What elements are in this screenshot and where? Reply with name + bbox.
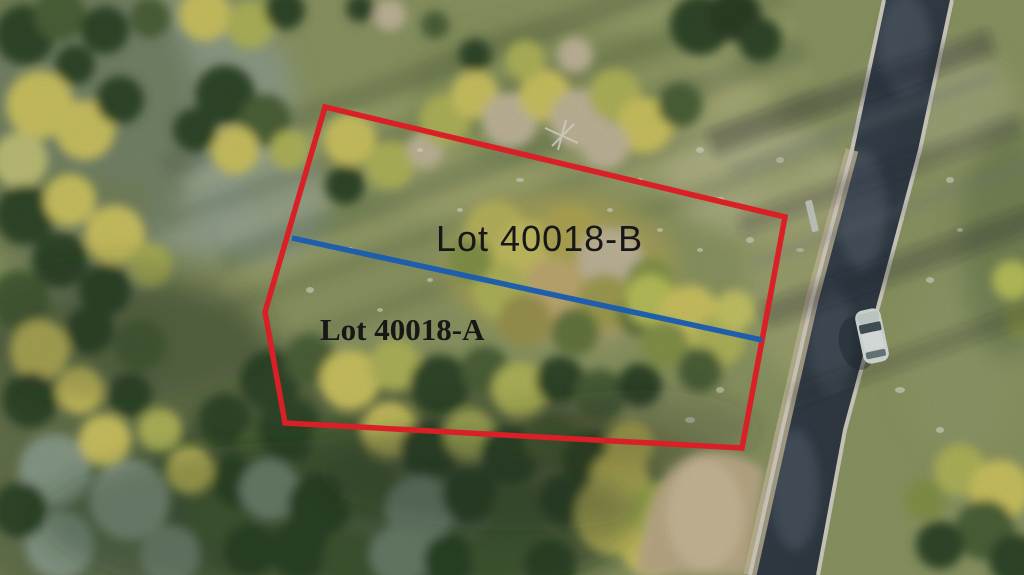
lot-b-label: Lot 40018-B — [436, 218, 643, 260]
aerial-lot-photo: Lot 40018-B Lot 40018-A — [0, 0, 1024, 575]
lot-a-label: Lot 40018-A — [320, 312, 484, 348]
aerial-photo-canvas — [0, 0, 1024, 575]
